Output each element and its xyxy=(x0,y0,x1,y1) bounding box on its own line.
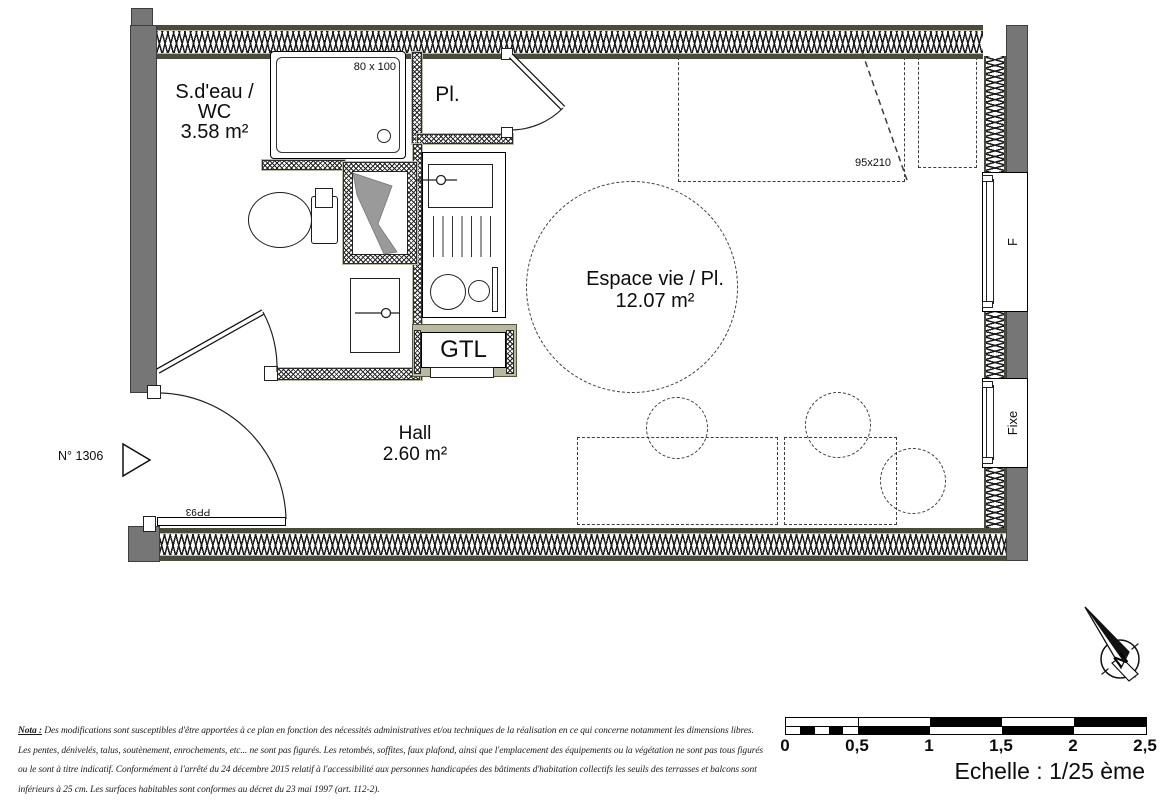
window-f-cap-top xyxy=(982,175,993,182)
unit-number-text: N° 1306 xyxy=(58,449,103,463)
window-fixe-label: Fixe xyxy=(1003,403,1023,443)
unit-entry-triangle xyxy=(123,444,150,476)
compass-tick-sw xyxy=(1102,669,1109,675)
scale-seg-bot-4 xyxy=(1002,727,1074,734)
chair-dashed-2 xyxy=(805,392,871,458)
scale-tick-0: 0 xyxy=(780,736,789,755)
toilet-flush-plate xyxy=(315,188,333,208)
compass-tick-nw xyxy=(1105,641,1111,648)
scale-tick-label-0: 0 xyxy=(765,736,805,756)
hall-label-text: Hall xyxy=(360,423,470,444)
nota-line-4: inférieurs à 25 cm. Les surfaces habitab… xyxy=(18,781,763,800)
compass-tail xyxy=(1112,657,1138,681)
scale-tick-25: 2,5 xyxy=(1133,736,1157,755)
compass-letter: N xyxy=(1110,649,1131,672)
living-area: 12.07 m² xyxy=(545,290,765,312)
shower-drain xyxy=(377,129,391,143)
scale-seg-bot-3 xyxy=(858,727,930,734)
unit-number: N° 1306 xyxy=(58,449,120,463)
jamb-bathroom-door-east xyxy=(264,366,278,381)
wall-bottom xyxy=(158,528,1008,561)
hall-label: Hall 2.60 m² xyxy=(360,423,470,465)
kitchen-column-dashed xyxy=(918,57,977,168)
gtl-hatch-right xyxy=(506,330,514,374)
washbasin xyxy=(350,278,400,353)
compass-needle-dark-half xyxy=(1085,607,1129,661)
partition-closet-bottom xyxy=(417,134,513,144)
window-fixe-cap-bottom xyxy=(982,457,993,464)
scale-tick-half xyxy=(858,718,859,726)
bathroom-door-leaf xyxy=(158,312,263,371)
scale-seg-top-1 xyxy=(930,718,1002,726)
shaft-inner xyxy=(352,171,408,255)
scale-tick-2: 2 xyxy=(1068,736,1077,755)
wall-left xyxy=(130,25,157,393)
scale-tick-1: 1 xyxy=(924,736,933,755)
kitchen-side-bar xyxy=(492,267,498,312)
scale-tick-label-05: 0,5 xyxy=(837,736,877,756)
toilet-bowl xyxy=(248,192,312,248)
nota-line-3-text: ou le sont à titre indicatif. Conforméme… xyxy=(18,765,757,775)
window-f-label: F xyxy=(1003,222,1023,262)
wall-right-insulation-2 xyxy=(984,312,1006,378)
bathroom-area: 3.58 m² xyxy=(152,122,277,142)
compass-needle xyxy=(1085,607,1129,668)
window-f-text: F xyxy=(1005,238,1020,246)
closet-label: Pl. xyxy=(420,84,475,106)
kitchen-burner-large xyxy=(430,274,466,310)
entry-door-leaf xyxy=(157,517,286,526)
kitchen-drainer-lines xyxy=(433,216,493,257)
window-fixe-text: Fixe xyxy=(1005,411,1020,436)
jamb-entry-door-top xyxy=(147,385,161,399)
shower-dimensions: 80 x 100 xyxy=(330,61,396,73)
closet-door-leaf-outline xyxy=(511,56,563,108)
window-f-cap-bottom xyxy=(982,301,993,308)
floor-plan-canvas: F Fixe GTL PP93 xyxy=(0,0,1175,800)
entry-door-arc xyxy=(160,393,286,519)
bathroom-label: S.d'eau / WC 3.58 m² xyxy=(152,82,277,142)
scale-tick-label-25: 2,5 xyxy=(1125,736,1165,756)
scale-seg-bot-2 xyxy=(829,727,843,734)
wall-right-insulation-3 xyxy=(984,468,1006,528)
nota-line-4-text: inférieurs à 25 cm. Les surfaces habitab… xyxy=(18,785,380,795)
living-label-text: Espace vie / Pl. xyxy=(545,268,765,290)
gtl-label: GTL xyxy=(440,336,487,363)
window-f-glass xyxy=(986,179,994,304)
partition-under-shower xyxy=(262,160,345,170)
scale-tick-label-2: 2 xyxy=(1053,736,1093,756)
chair-dashed-1 xyxy=(646,397,708,459)
jamb-closet-door-bottom xyxy=(501,127,513,138)
nota-line-2-text: Les pentes, dénivelés, talus, soutènemen… xyxy=(18,746,763,756)
bathroom-label-line1: S.d'eau / xyxy=(152,82,277,102)
scale-tick-label-15: 1,5 xyxy=(981,736,1021,756)
nota-line-1: Nota : Des modifications sont susceptibl… xyxy=(18,722,763,742)
kitchenette-unit xyxy=(422,152,506,318)
gtl-hatch-left xyxy=(414,330,421,374)
kitchen-sink xyxy=(428,164,493,208)
gtl-box: GTL xyxy=(421,332,506,368)
living-label: Espace vie / Pl. 12.07 m² xyxy=(545,268,765,312)
kitchen-burner-small xyxy=(468,280,490,302)
window-fixe-glass xyxy=(986,385,994,460)
closet-label-text: Pl. xyxy=(435,83,460,106)
entry-door-ref: PP93 xyxy=(180,504,216,518)
scale-tick-15: 1,5 xyxy=(989,736,1013,755)
entry-door-ref-text: PP93 xyxy=(186,506,210,517)
nota-line-3: ou le sont à titre indicatif. Conforméme… xyxy=(18,761,763,781)
closet-door-leaf xyxy=(511,56,563,108)
nota-prefix: Nota : xyxy=(18,726,42,736)
compass-tick-se xyxy=(1130,671,1136,678)
jamb-entry-door-bottom xyxy=(143,516,156,532)
north-arrow: N xyxy=(1085,607,1139,681)
gtl-bottom-vent xyxy=(430,367,494,378)
bathroom-door-arc xyxy=(263,312,277,372)
scale-bar xyxy=(785,717,1147,735)
compass-circle xyxy=(1101,640,1139,678)
chair-dashed-3 xyxy=(880,448,946,514)
hall-area: 2.60 m² xyxy=(360,444,470,465)
shower-dimensions-text: 80 x 100 xyxy=(354,61,396,73)
scale-tick-label-1: 1 xyxy=(909,736,949,756)
compass-tick-ne xyxy=(1132,644,1139,650)
scale-caption-text: Echelle : 1/25 ème xyxy=(954,758,1145,784)
bathroom-door-leaf-outline xyxy=(158,312,263,371)
closet-door-arc xyxy=(512,108,563,130)
bathroom-label-line2: WC xyxy=(152,102,277,122)
scale-seg-bot-1 xyxy=(800,727,815,734)
window-fixe-cap-top xyxy=(982,381,993,388)
scale-seg-top-2 xyxy=(1074,718,1146,726)
wall-right-insulation-1 xyxy=(984,56,1006,172)
wardrobe-dimensions: 95x210 xyxy=(848,157,898,169)
nota-block: Nota : Des modifications sont susceptibl… xyxy=(18,722,763,800)
partition-bathroom-south xyxy=(277,368,420,380)
scale-caption: Echelle : 1/25 ème xyxy=(905,758,1145,785)
nota-line-1-text: Des modifications sont susceptibles d'êt… xyxy=(44,726,754,736)
scale-tick-05: 0,5 xyxy=(845,736,869,755)
nota-line-2: Les pentes, dénivelés, talus, soutènemen… xyxy=(18,742,763,762)
jamb-closet-door-top xyxy=(501,48,513,60)
wardrobe-dimensions-text: 95x210 xyxy=(855,157,891,169)
